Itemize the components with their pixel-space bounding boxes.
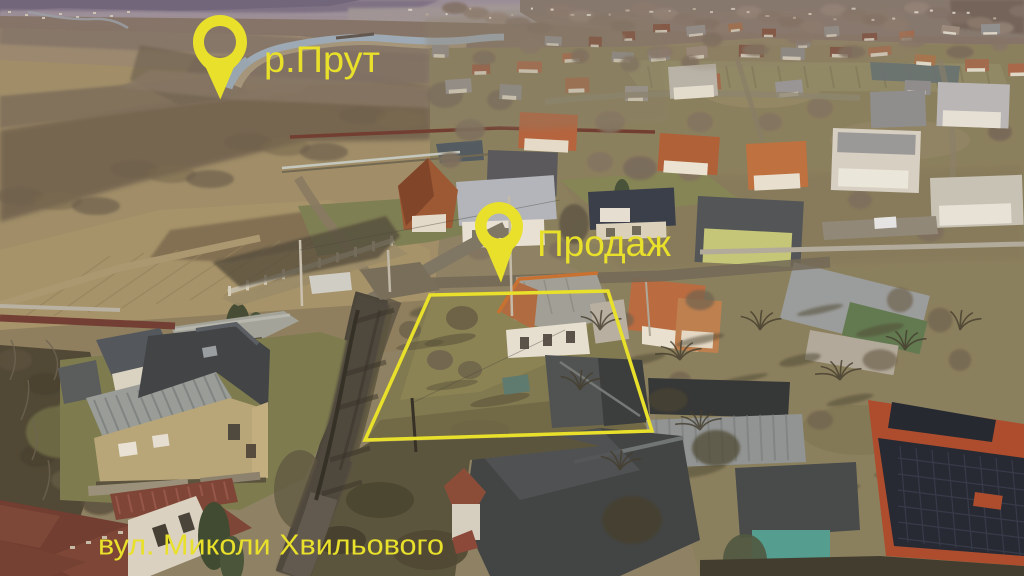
- svg-text:вул. Миколи Хвильового: вул. Миколи Хвильового: [98, 530, 444, 562]
- svg-text:р.Прут: р.Прут: [264, 39, 380, 80]
- svg-text:Продаж: Продаж: [537, 223, 671, 264]
